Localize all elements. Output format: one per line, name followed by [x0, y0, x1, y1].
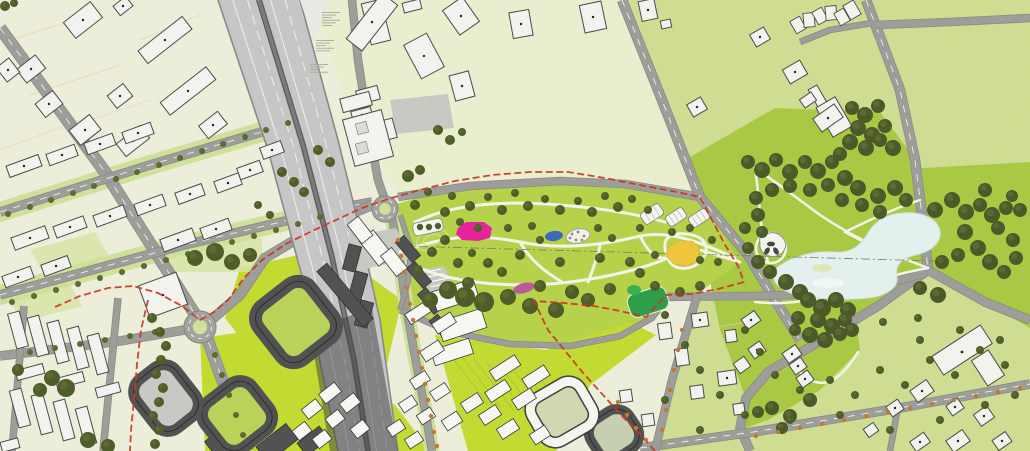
street-tree-dot	[664, 408, 668, 412]
street-tree-dot	[676, 348, 680, 352]
building	[660, 19, 671, 29]
building	[641, 413, 655, 427]
street-tree-dot	[405, 286, 409, 290]
street-tree-dot	[634, 426, 638, 430]
street-tree-dot	[842, 418, 846, 422]
street-tree-dot	[625, 413, 629, 417]
street-tree-dot	[952, 398, 956, 402]
building	[619, 389, 633, 403]
masterplan-map	[0, 0, 1030, 451]
street-tree-dot	[429, 414, 433, 418]
street-tree-dot	[668, 388, 672, 392]
street-tree-dot	[423, 382, 427, 386]
street-tree-dot	[820, 422, 824, 426]
street-tree-dot	[680, 328, 684, 332]
street-tree-dot	[754, 434, 758, 438]
street-tree-dot	[414, 334, 418, 338]
street-tree-dot	[660, 428, 664, 432]
masterplan-svg	[0, 0, 1030, 451]
street-tree-dot	[426, 398, 430, 402]
street-tree-dot	[798, 426, 802, 430]
street-tree-dot	[408, 302, 412, 306]
pond-island	[812, 264, 832, 272]
playground-green	[627, 285, 641, 295]
street-tree-dot	[886, 410, 890, 414]
street-tree-dot	[399, 254, 403, 258]
building	[725, 329, 738, 342]
street-tree-dot	[672, 368, 676, 372]
street-tree-dot	[396, 238, 400, 242]
street-tree-dot	[864, 414, 868, 418]
street-tree-dot	[996, 390, 1000, 394]
building	[690, 385, 705, 400]
street-tree-dot	[616, 400, 620, 404]
street-tree-dot	[930, 402, 934, 406]
street-tree-dot	[402, 270, 406, 274]
street-tree-dot	[776, 430, 780, 434]
street-tree-dot	[908, 406, 912, 410]
street-tree-dot	[644, 438, 648, 442]
street-tree-dot	[411, 318, 415, 322]
street-tree-dot	[417, 350, 421, 354]
street-tree-dot	[420, 366, 424, 370]
street-tree-dot	[974, 394, 978, 398]
street-tree-dot	[435, 444, 439, 448]
building	[657, 322, 672, 340]
street-tree-dot	[1018, 386, 1022, 390]
street-tree-dot	[432, 430, 436, 434]
